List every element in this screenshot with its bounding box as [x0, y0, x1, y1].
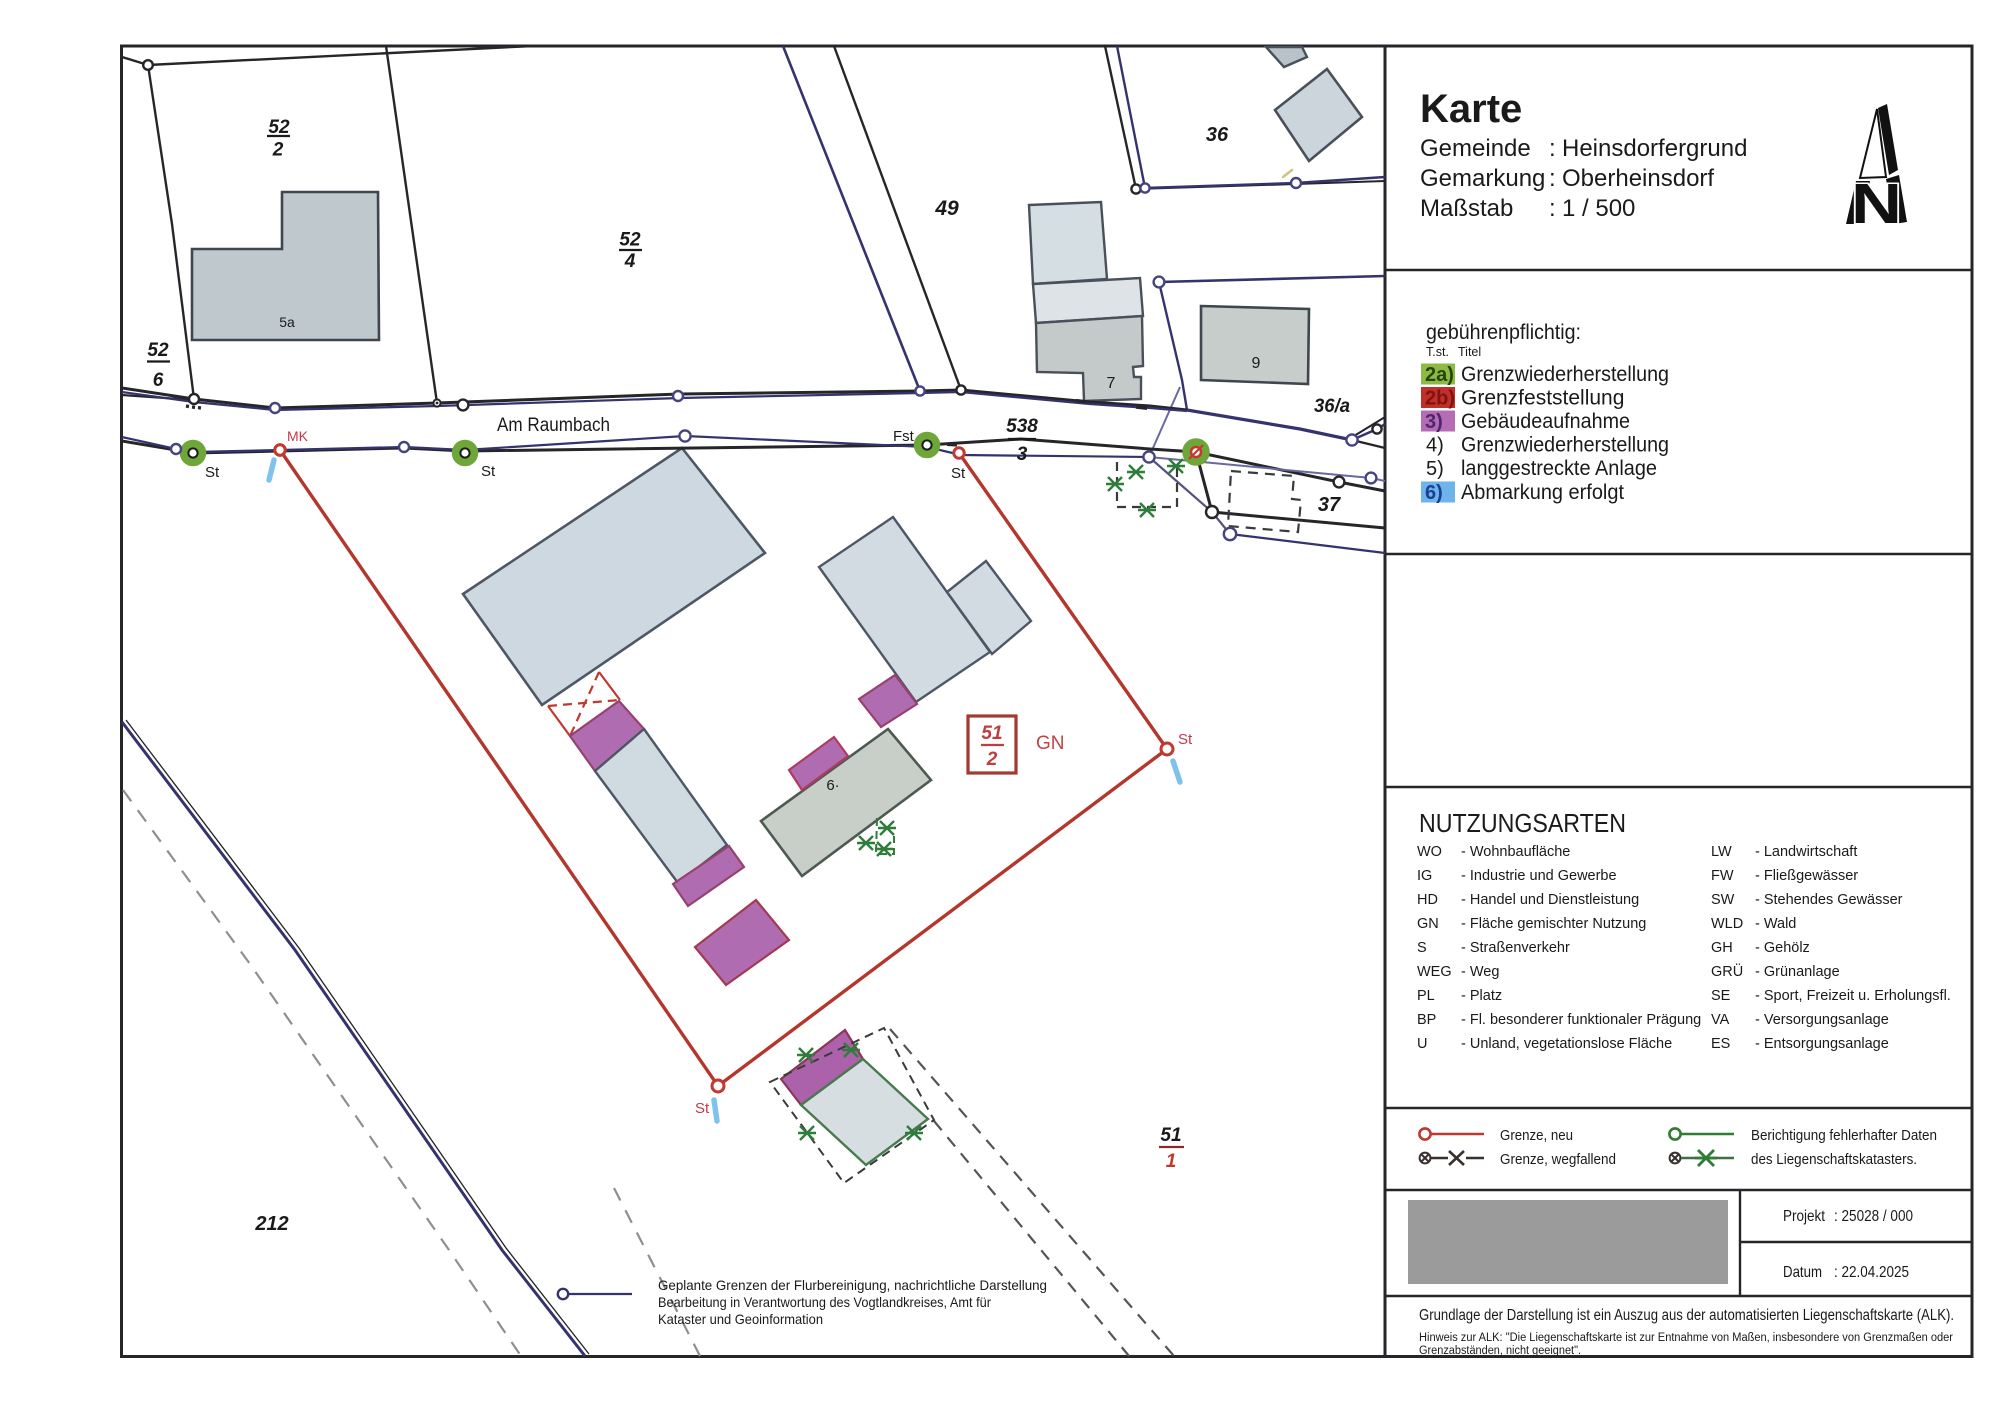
svg-text:GRÜ: GRÜ	[1711, 962, 1743, 980]
svg-text:GN: GN	[1417, 916, 1439, 932]
svg-text:BP: BP	[1417, 1012, 1436, 1028]
svg-text:2: 2	[272, 140, 284, 161]
svg-text:langgestreckte Anlage: langgestreckte Anlage	[1461, 457, 1657, 480]
svg-text:St: St	[695, 1100, 710, 1117]
svg-text:37: 37	[1318, 494, 1341, 516]
svg-text:6): 6)	[1425, 482, 1443, 504]
svg-text:- Handel und Dienstleistung: - Handel und Dienstleistung	[1461, 892, 1639, 908]
svg-text:Titel: Titel	[1458, 345, 1481, 359]
svg-text:St: St	[481, 463, 496, 480]
svg-text:des Liegenschaftskatasters.: des Liegenschaftskatasters.	[1751, 1151, 1917, 1168]
svg-text:Grenzwiederherstellung: Grenzwiederherstellung	[1461, 434, 1669, 457]
svg-text:Oberheinsdorf: Oberheinsdorf	[1562, 165, 1714, 192]
svg-text:FW: FW	[1711, 868, 1734, 884]
svg-text:WEG: WEG	[1417, 964, 1452, 980]
svg-text:5a: 5a	[279, 314, 295, 330]
svg-text:Bearbeitung in Verantwortung d: Bearbeitung in Verantwortung des Vogtlan…	[658, 1294, 991, 1310]
svg-text:Maßstab: Maßstab	[1420, 195, 1513, 222]
svg-text:St: St	[1178, 731, 1193, 748]
svg-text:- Straßenverkehr: - Straßenverkehr	[1461, 940, 1570, 956]
svg-text:- Stehendes Gewässer: - Stehendes Gewässer	[1755, 892, 1903, 908]
svg-text:Gebäudeaufnahme: Gebäudeaufnahme	[1461, 410, 1630, 433]
svg-text:1: 1	[1166, 1151, 1177, 1172]
svg-text:Hinweis zur ALK: "Die Liegensc: Hinweis zur ALK: "Die Liegenschaftskarte…	[1419, 1332, 1953, 1344]
svg-text:- Entsorgungsanlage: - Entsorgungsanlage	[1755, 1036, 1889, 1052]
svg-text:- Fl. besonderer funktionaler: - Fl. besonderer funktionaler Prägung	[1461, 1012, 1701, 1028]
svg-text:Berichtigung fehlerhafter Date: Berichtigung fehlerhafter Daten	[1751, 1127, 1937, 1144]
svg-text:PL: PL	[1417, 988, 1435, 1004]
svg-text:2: 2	[986, 749, 998, 770]
svg-text:49: 49	[934, 197, 959, 220]
svg-text:HD: HD	[1417, 892, 1438, 908]
svg-text:3): 3)	[1425, 411, 1443, 433]
svg-text:Grenze, wegfallend: Grenze, wegfallend	[1500, 1151, 1616, 1168]
svg-text:SW: SW	[1711, 892, 1735, 908]
svg-text:N: N	[1851, 172, 1902, 236]
svg-text:LW: LW	[1711, 844, 1732, 860]
svg-text:6·: 6·	[826, 777, 839, 794]
svg-text:Kataster und Geoinformation: Kataster und Geoinformation	[658, 1311, 823, 1327]
svg-text:Fst: Fst	[893, 428, 915, 445]
svg-text:Grenzabständen, nicht geeignet: Grenzabständen, nicht geeignet".	[1419, 1345, 1581, 1357]
svg-text:51: 51	[981, 723, 1002, 744]
svg-text:9: 9	[1252, 355, 1261, 372]
svg-text:VA: VA	[1711, 1012, 1730, 1028]
svg-text:- Wald: - Wald	[1755, 916, 1796, 932]
svg-text:- Grünanlage: - Grünanlage	[1755, 964, 1840, 980]
svg-text:Grenzwiederherstellung: Grenzwiederherstellung	[1461, 363, 1669, 386]
svg-text:WO: WO	[1417, 844, 1442, 860]
svg-text:52: 52	[268, 117, 290, 138]
svg-text:Projekt: Projekt	[1783, 1208, 1825, 1225]
svg-text:- Weg: - Weg	[1461, 964, 1499, 980]
svg-text:Datum: Datum	[1783, 1264, 1822, 1281]
svg-text:NUTZUNGSARTEN: NUTZUNGSARTEN	[1419, 808, 1626, 838]
svg-text:Grundlage der Darstellung ist: Grundlage der Darstellung ist ein Auszug…	[1419, 1307, 1954, 1324]
svg-text:Gemeinde: Gemeinde	[1420, 135, 1531, 162]
svg-text:: 25028 / 000: : 25028 / 000	[1834, 1208, 1913, 1225]
svg-text:U: U	[1417, 1036, 1427, 1052]
svg-text:7: 7	[1107, 375, 1116, 392]
svg-text:51: 51	[1160, 1125, 1181, 1146]
svg-text:1 / 500: 1 / 500	[1562, 195, 1635, 222]
svg-text:3: 3	[1017, 444, 1028, 465]
svg-text:212: 212	[254, 1213, 288, 1235]
svg-text:SE: SE	[1711, 988, 1731, 1004]
svg-text:6: 6	[153, 370, 164, 391]
svg-text:52: 52	[147, 340, 169, 361]
svg-text:S: S	[1417, 940, 1427, 956]
svg-text:Gemarkung: Gemarkung	[1420, 165, 1545, 192]
svg-text:2a): 2a)	[1425, 364, 1454, 386]
svg-text:MK: MK	[287, 428, 309, 444]
svg-text:St: St	[205, 464, 220, 481]
svg-text:St: St	[951, 465, 966, 482]
svg-text:Geplante Grenzen der Flurberei: Geplante Grenzen der Flurbereinigung, na…	[658, 1277, 1047, 1293]
svg-text:- Fließgewässer: - Fließgewässer	[1755, 868, 1858, 884]
svg-text::: :	[1549, 135, 1556, 162]
svg-text:538: 538	[1006, 416, 1038, 437]
svg-text:- Platz: - Platz	[1461, 988, 1502, 1004]
svg-text::: :	[1549, 165, 1556, 192]
svg-text:- Industrie und Gewerbe: - Industrie und Gewerbe	[1461, 868, 1617, 884]
svg-text:ES: ES	[1711, 1036, 1730, 1052]
svg-text:Abmarkung erfolgt: Abmarkung erfolgt	[1461, 481, 1624, 504]
svg-text:36/a: 36/a	[1314, 396, 1350, 417]
svg-text:- Landwirtschaft: - Landwirtschaft	[1755, 844, 1857, 860]
svg-text:4: 4	[624, 251, 636, 272]
svg-text:WLD: WLD	[1711, 916, 1743, 932]
svg-text:2b): 2b)	[1425, 388, 1455, 410]
svg-text:5): 5)	[1426, 458, 1444, 480]
svg-text::: :	[1549, 195, 1556, 222]
svg-text:- Gehölz: - Gehölz	[1755, 940, 1810, 956]
svg-text:T.st.: T.st.	[1426, 345, 1449, 359]
svg-text:Heinsdorfergrund: Heinsdorfergrund	[1562, 135, 1747, 162]
svg-text:52: 52	[619, 230, 641, 251]
svg-text:Am Raumbach: Am Raumbach	[497, 415, 610, 436]
svg-text:Grenze, neu: Grenze, neu	[1500, 1127, 1573, 1144]
svg-text:Grenzfeststellung: Grenzfeststellung	[1461, 387, 1624, 410]
svg-text:- Versorgungsanlage: - Versorgungsanlage	[1755, 1012, 1889, 1028]
svg-text:- Unland, vegetationslose Fläc: - Unland, vegetationslose Fläche	[1461, 1036, 1672, 1052]
svg-text:GN: GN	[1036, 733, 1065, 754]
svg-text:- Wohnbaufläche: - Wohnbaufläche	[1461, 844, 1570, 860]
svg-text:4): 4)	[1426, 435, 1444, 457]
svg-text:GH: GH	[1711, 940, 1733, 956]
svg-text:IG: IG	[1417, 868, 1432, 884]
svg-text:- Fläche gemischter Nutzung: - Fläche gemischter Nutzung	[1461, 916, 1646, 932]
svg-text:- Sport, Freizeit u. Erholungs: - Sport, Freizeit u. Erholungsfl.	[1755, 988, 1951, 1004]
svg-text:36: 36	[1206, 124, 1229, 146]
svg-text:gebührenpflichtig:: gebührenpflichtig:	[1426, 321, 1581, 344]
svg-text:: 22.04.2025: : 22.04.2025	[1834, 1264, 1909, 1281]
svg-text:Karte: Karte	[1420, 87, 1522, 131]
